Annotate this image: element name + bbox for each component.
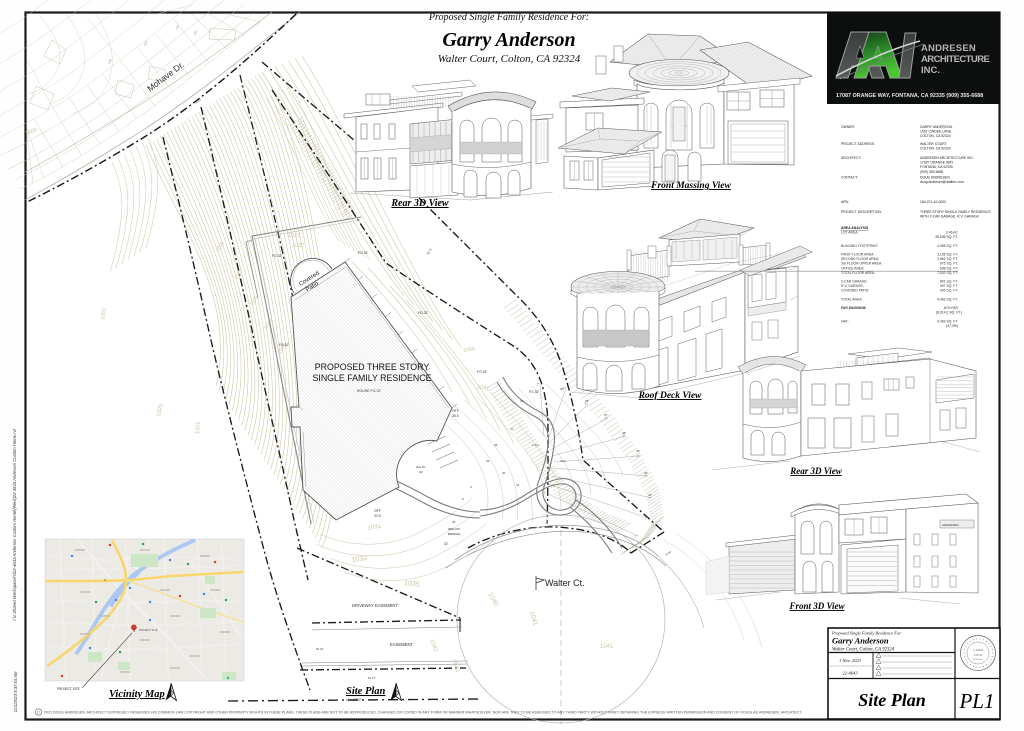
svg-text:42': 42': [419, 470, 423, 474]
svg-text:41': 41': [648, 493, 652, 497]
svg-text:FIRST FLOOR AREA:: FIRST FLOOR AREA:: [841, 253, 874, 257]
svg-text:SINGLE FAMILY RESIDENCE: SINGLE FAMILY RESIDENCE: [313, 373, 432, 383]
svg-text:2-CAR GARAGE:: 2-CAR GARAGE:: [841, 280, 868, 284]
svg-text:3rd FLOOR UPPER AREA:: 3rd FLOOR UPPER AREA:: [841, 262, 882, 266]
svg-text:(47.3%): (47.3%): [946, 324, 958, 328]
svg-text:OFF: OFF: [374, 509, 381, 513]
svg-text:Site Plan: Site Plan: [346, 686, 386, 697]
svg-text:36: 36: [560, 387, 564, 391]
svg-text:81.23': 81.23': [316, 647, 324, 651]
svg-text:PROJECT DESCRIPTION:: PROJECT DESCRIPTION:: [841, 210, 882, 214]
svg-text:1597 CINDEE LANE,: 1597 CINDEE LANE,: [920, 130, 952, 134]
svg-text:Rear 3D View: Rear 3D View: [789, 466, 843, 476]
svg-text:FG 32': FG 32': [272, 254, 282, 258]
svg-text:3.46 AC: 3.46 AC: [946, 231, 959, 235]
svg-text:(BELOW: (BELOW: [448, 527, 460, 531]
svg-text:Rear 3D View: Rear 3D View: [390, 198, 449, 209]
svg-text:Roof Deck View: Roof Deck View: [638, 391, 702, 401]
svg-text:9,463 SQ. FT.: 9,463 SQ. FT.: [937, 320, 958, 324]
svg-text:LOT AREA:: LOT AREA:: [841, 231, 859, 235]
svg-text:Vicinity Map: Vicinity Map: [109, 689, 165, 700]
svg-text:HOUSE FG 32': HOUSE FG 32': [357, 389, 382, 393]
svg-text:GARRY ANDERSON,: GARRY ANDERSON,: [920, 125, 953, 129]
svg-text:1027: 1027: [292, 243, 304, 249]
svg-text:81.37': 81.37': [368, 676, 376, 680]
svg-text:164-071-42-0000: 164-071-42-0000: [920, 200, 946, 204]
svg-text:Walter Court, Colton, CA 92324: Walter Court, Colton, CA 92324: [832, 648, 895, 653]
svg-text:32': 32': [444, 542, 449, 546]
svg-text:39: 39: [486, 459, 490, 463]
svg-text:Front Massing View: Front Massing View: [650, 181, 731, 191]
svg-text:17087 ORANGE WAY, FONTANA, CA: 17087 ORANGE WAY, FONTANA, CA 92335 (909…: [836, 93, 983, 99]
svg-text:PROJECT SITE: PROJECT SITE: [57, 687, 80, 691]
svg-text:ANDRESEN ARCHITECTURE INC.: ANDRESEN ARCHITECTURE INC.: [920, 156, 974, 160]
svg-text:ANDRESEN: ANDRESEN: [921, 43, 976, 54]
svg-text:497 SQ. FT.: 497 SQ. FT.: [940, 284, 958, 288]
svg-text:ARCHITECTURE: ARCHITECTURE: [921, 54, 990, 65]
svg-text:OWNER:: OWNER:: [841, 125, 855, 129]
svg-text:FG 32': FG 32': [279, 343, 289, 347]
svg-text:37': 37': [604, 413, 608, 417]
svg-text:BUILDING FOOTPRINT:: BUILDING FOOTPRINT:: [841, 244, 878, 248]
svg-text:Walter Court, Colton, CA 92324: Walter Court, Colton, CA 92324: [438, 53, 581, 65]
svg-text:6-30-25: 6-30-25: [974, 654, 983, 657]
svg-text:Garry Anderson: Garry Anderson: [832, 636, 889, 646]
svg-text:345 SQ. FT.: 345 SQ. FT.: [940, 289, 958, 293]
svg-text:RENEWAL: RENEWAL: [973, 658, 984, 661]
svg-text:1001: 1001: [195, 421, 202, 434]
svg-text:WITH 2-CAR GARAGE, R.V. GARAGE: WITH 2-CAR GARAGE, R.V. GARAGE: [920, 215, 980, 219]
svg-text:40% FAR: 40% FAR: [944, 306, 959, 310]
svg-text:Garry Anderson: Garry Anderson: [442, 29, 575, 51]
svg-text:doug.andresen@aiafirm.com: doug.andresen@aiafirm.com: [920, 180, 964, 184]
svg-text:PROJECT ADDRESS:: PROJECT ADDRESS:: [841, 142, 875, 146]
svg-text:FG 32': FG 32': [477, 370, 487, 374]
svg-text:FG 32': FG 32': [418, 311, 428, 315]
svg-text:40': 40': [644, 471, 648, 475]
svg-text:COLTON, CA 92324: COLTON, CA 92324: [920, 147, 951, 151]
svg-text:R.V. GARAGE:: R.V. GARAGE:: [841, 284, 864, 288]
svg-text:APN:: APN:: [841, 200, 849, 204]
svg-text:11/1/2023 9:37:54 AM: 11/1/2023 9:37:54 AM: [13, 671, 18, 712]
svg-text:DOUG ANDRESEN: DOUG ANDRESEN: [920, 176, 950, 180]
svg-text:33: 33: [452, 520, 456, 524]
svg-text:3 1/2: 3 1/2: [532, 443, 539, 447]
svg-text:38': 38': [622, 431, 626, 435]
svg-text:EASEMENT: EASEMENT: [390, 642, 413, 647]
svg-text:36': 36': [585, 399, 589, 403]
svg-text:691 SQ. FT.: 691 SQ. FT.: [940, 280, 958, 284]
svg-text:(9,014.2 SQ. FT.): (9,014.2 SQ. FT.): [936, 311, 962, 315]
svg-text:1" = 10'-0": 1" = 10'-0": [346, 698, 362, 702]
svg-text:3,198 SQ. FT.: 3,198 SQ. FT.: [937, 253, 958, 257]
svg-text:35.5: 35.5: [452, 414, 459, 418]
svg-text:25,036 SQ. FT.: 25,036 SQ. FT.: [935, 235, 958, 239]
svg-text:AREA ANALYSIS: AREA ANALYSIS: [841, 226, 869, 230]
svg-text:WALTER COURT,: WALTER COURT,: [920, 142, 947, 146]
svg-text:CONTACT:: CONTACT:: [841, 176, 858, 180]
svg-text:C-14694: C-14694: [973, 648, 984, 652]
svg-text:9,463 SQ. FT.: 9,463 SQ. FT.: [937, 298, 958, 302]
svg-text:22-4643: 22-4643: [842, 671, 858, 676]
svg-text:COVERED PATIO:: COVERED PATIO:: [841, 289, 869, 293]
svg-text:TOTAL AREA:: TOTAL AREA:: [841, 298, 862, 302]
svg-text:SECOND FLOOR AREA:: SECOND FLOOR AREA:: [841, 257, 879, 261]
svg-text:1027: 1027: [288, 233, 300, 239]
svg-text:PROJECT SITE: PROJECT SITE: [139, 628, 158, 632]
svg-text:C: C: [37, 710, 40, 715]
svg-text:Site Plan: Site Plan: [858, 690, 926, 710]
svg-text:DRIVEWAY EASEMENT: DRIVEWAY EASEMENT: [352, 603, 398, 608]
svg-text:41/2: 41/2: [560, 459, 566, 463]
svg-text:BRIDGE): BRIDGE): [448, 532, 461, 536]
svg-text:FG 32': FG 32': [529, 390, 539, 394]
svg-text:39': 39': [636, 449, 640, 453]
svg-text:Proposed Single Family Residen: Proposed Single Family Residence For:: [428, 12, 589, 23]
svg-text:4,358 SQ. FT.: 4,358 SQ. FT.: [937, 244, 958, 248]
svg-text:Front 3D View: Front 3D View: [788, 601, 845, 611]
svg-text:975 SQ. FT.: 975 SQ. FT.: [940, 262, 958, 266]
svg-text:(909) 355-6688: (909) 355-6688: [920, 170, 943, 174]
svg-text:I:\1.Shared Workspace\'s\22-46: I:\1.Shared Workspace\'s\22-4643 Anderso…: [12, 428, 17, 620]
svg-text:37: 37: [510, 427, 514, 431]
svg-text:OFFICE AREA:: OFFICE AREA:: [841, 266, 864, 270]
svg-text:17087 ORANGE WAY: 17087 ORANGE WAY: [920, 161, 954, 165]
svg-text:508 SQ. FT.: 508 SQ. FT.: [940, 266, 958, 270]
svg-text:1041: 1041: [600, 644, 614, 650]
svg-text:OFF: OFF: [452, 409, 459, 413]
svg-text:2021 DOUG ANDRESEN, ARCHITECT: 2021 DOUG ANDRESEN, ARCHITECT EXPRESSLY …: [44, 711, 802, 715]
svg-text:INC.: INC.: [921, 65, 940, 76]
svg-text:PROPOSED THREE STORY: PROPOSED THREE STORY: [315, 362, 430, 372]
svg-text:PL1: PL1: [958, 689, 994, 713]
svg-text:2,861 SQ. FT.: 2,861 SQ. FT.: [937, 257, 958, 261]
svg-text:35: 35: [520, 399, 524, 403]
svg-text:FG 32': FG 32': [358, 251, 368, 255]
svg-text:2nd Flr: 2nd Flr: [416, 465, 425, 469]
svg-text:1 Nov. 2023: 1 Nov. 2023: [839, 658, 862, 663]
svg-text:COLTON, CA 92324: COLTON, CA 92324: [920, 134, 951, 138]
svg-text:ANDRESEN: ANDRESEN: [942, 523, 959, 527]
svg-text:38: 38: [494, 443, 498, 447]
svg-text:FAR MAXIMUM:: FAR MAXIMUM:: [841, 306, 866, 310]
svg-text:ARCHITECT:: ARCHITECT:: [841, 156, 861, 160]
svg-text:32.5: 32.5: [374, 514, 381, 518]
svg-text:FAR:: FAR:: [841, 320, 849, 324]
svg-text:41: 41: [516, 483, 520, 487]
svg-text:FONTANA, CA 92335: FONTANA, CA 92335: [920, 165, 953, 169]
svg-text:Walter Ct.: Walter Ct.: [545, 578, 585, 588]
svg-text:THREE STORY SINGLE FAMILY RESI: THREE STORY SINGLE FAMILY RESIDENCE: [920, 210, 991, 214]
svg-text:40: 40: [502, 471, 506, 475]
